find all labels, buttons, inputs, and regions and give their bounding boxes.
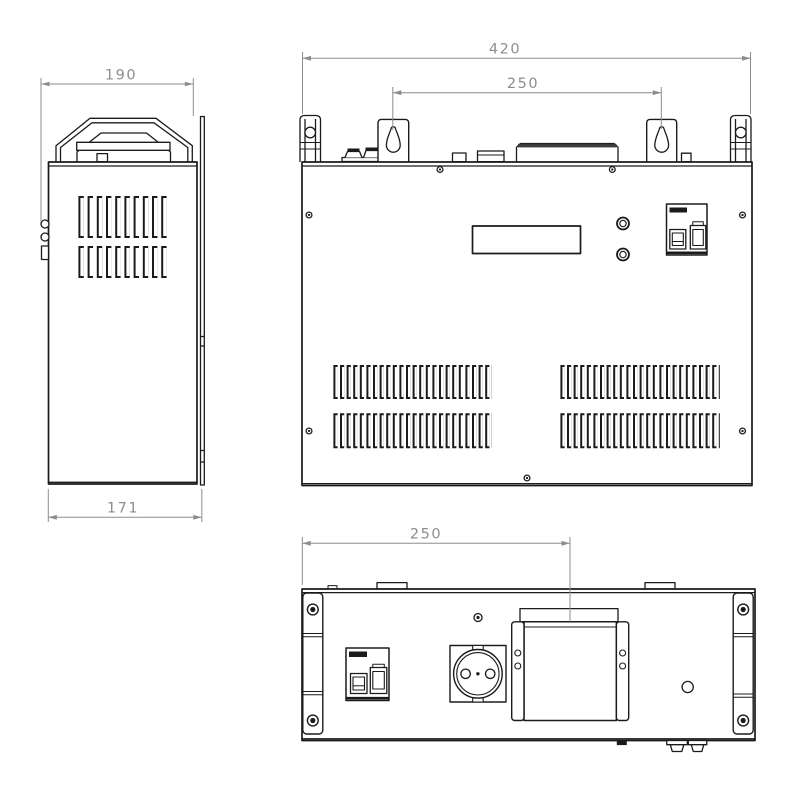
bottom-bump	[617, 741, 627, 746]
cable-gland-left	[667, 741, 688, 752]
door-latch	[41, 220, 49, 260]
cable-gland-right	[688, 741, 707, 752]
dimension-label-250-top: 250	[507, 76, 539, 92]
side-carry-handle	[56, 118, 192, 161]
control-button-top	[617, 218, 629, 230]
control-button-bottom	[617, 249, 629, 261]
side-view: 190 171	[41, 68, 204, 523]
bottom-view: 250	[302, 527, 755, 752]
power-socket	[450, 646, 506, 703]
circuit-breaker-front	[667, 204, 708, 255]
dimension-label-171: 171	[107, 500, 139, 516]
handle-end-right	[731, 116, 752, 163]
circuit-breaker-bottom	[346, 648, 389, 701]
dimension-label-190: 190	[105, 68, 137, 84]
bottom-top-tabs	[328, 583, 675, 589]
dimension-label-250-bottom: 250	[410, 527, 442, 543]
handle-end-left	[300, 116, 321, 163]
display-window	[473, 226, 581, 254]
technical-drawing: 190 171	[0, 0, 800, 800]
side-body	[49, 162, 198, 484]
dimension-front-keyhole-spacing: 250	[393, 76, 662, 130]
keyhole-bracket-left	[378, 119, 409, 162]
dimension-label-420: 420	[489, 42, 521, 58]
front-view: 420 250	[300, 42, 752, 486]
corner-rail-left	[303, 593, 323, 734]
top-terminal-block	[517, 144, 619, 162]
corner-rail-right	[733, 593, 753, 734]
rear-mounting-flange	[201, 117, 205, 486]
drawing-canvas: 190 171	[0, 0, 800, 800]
dimension-side-depth-bottom: 171	[48, 489, 202, 522]
terminal-cover	[512, 609, 629, 721]
